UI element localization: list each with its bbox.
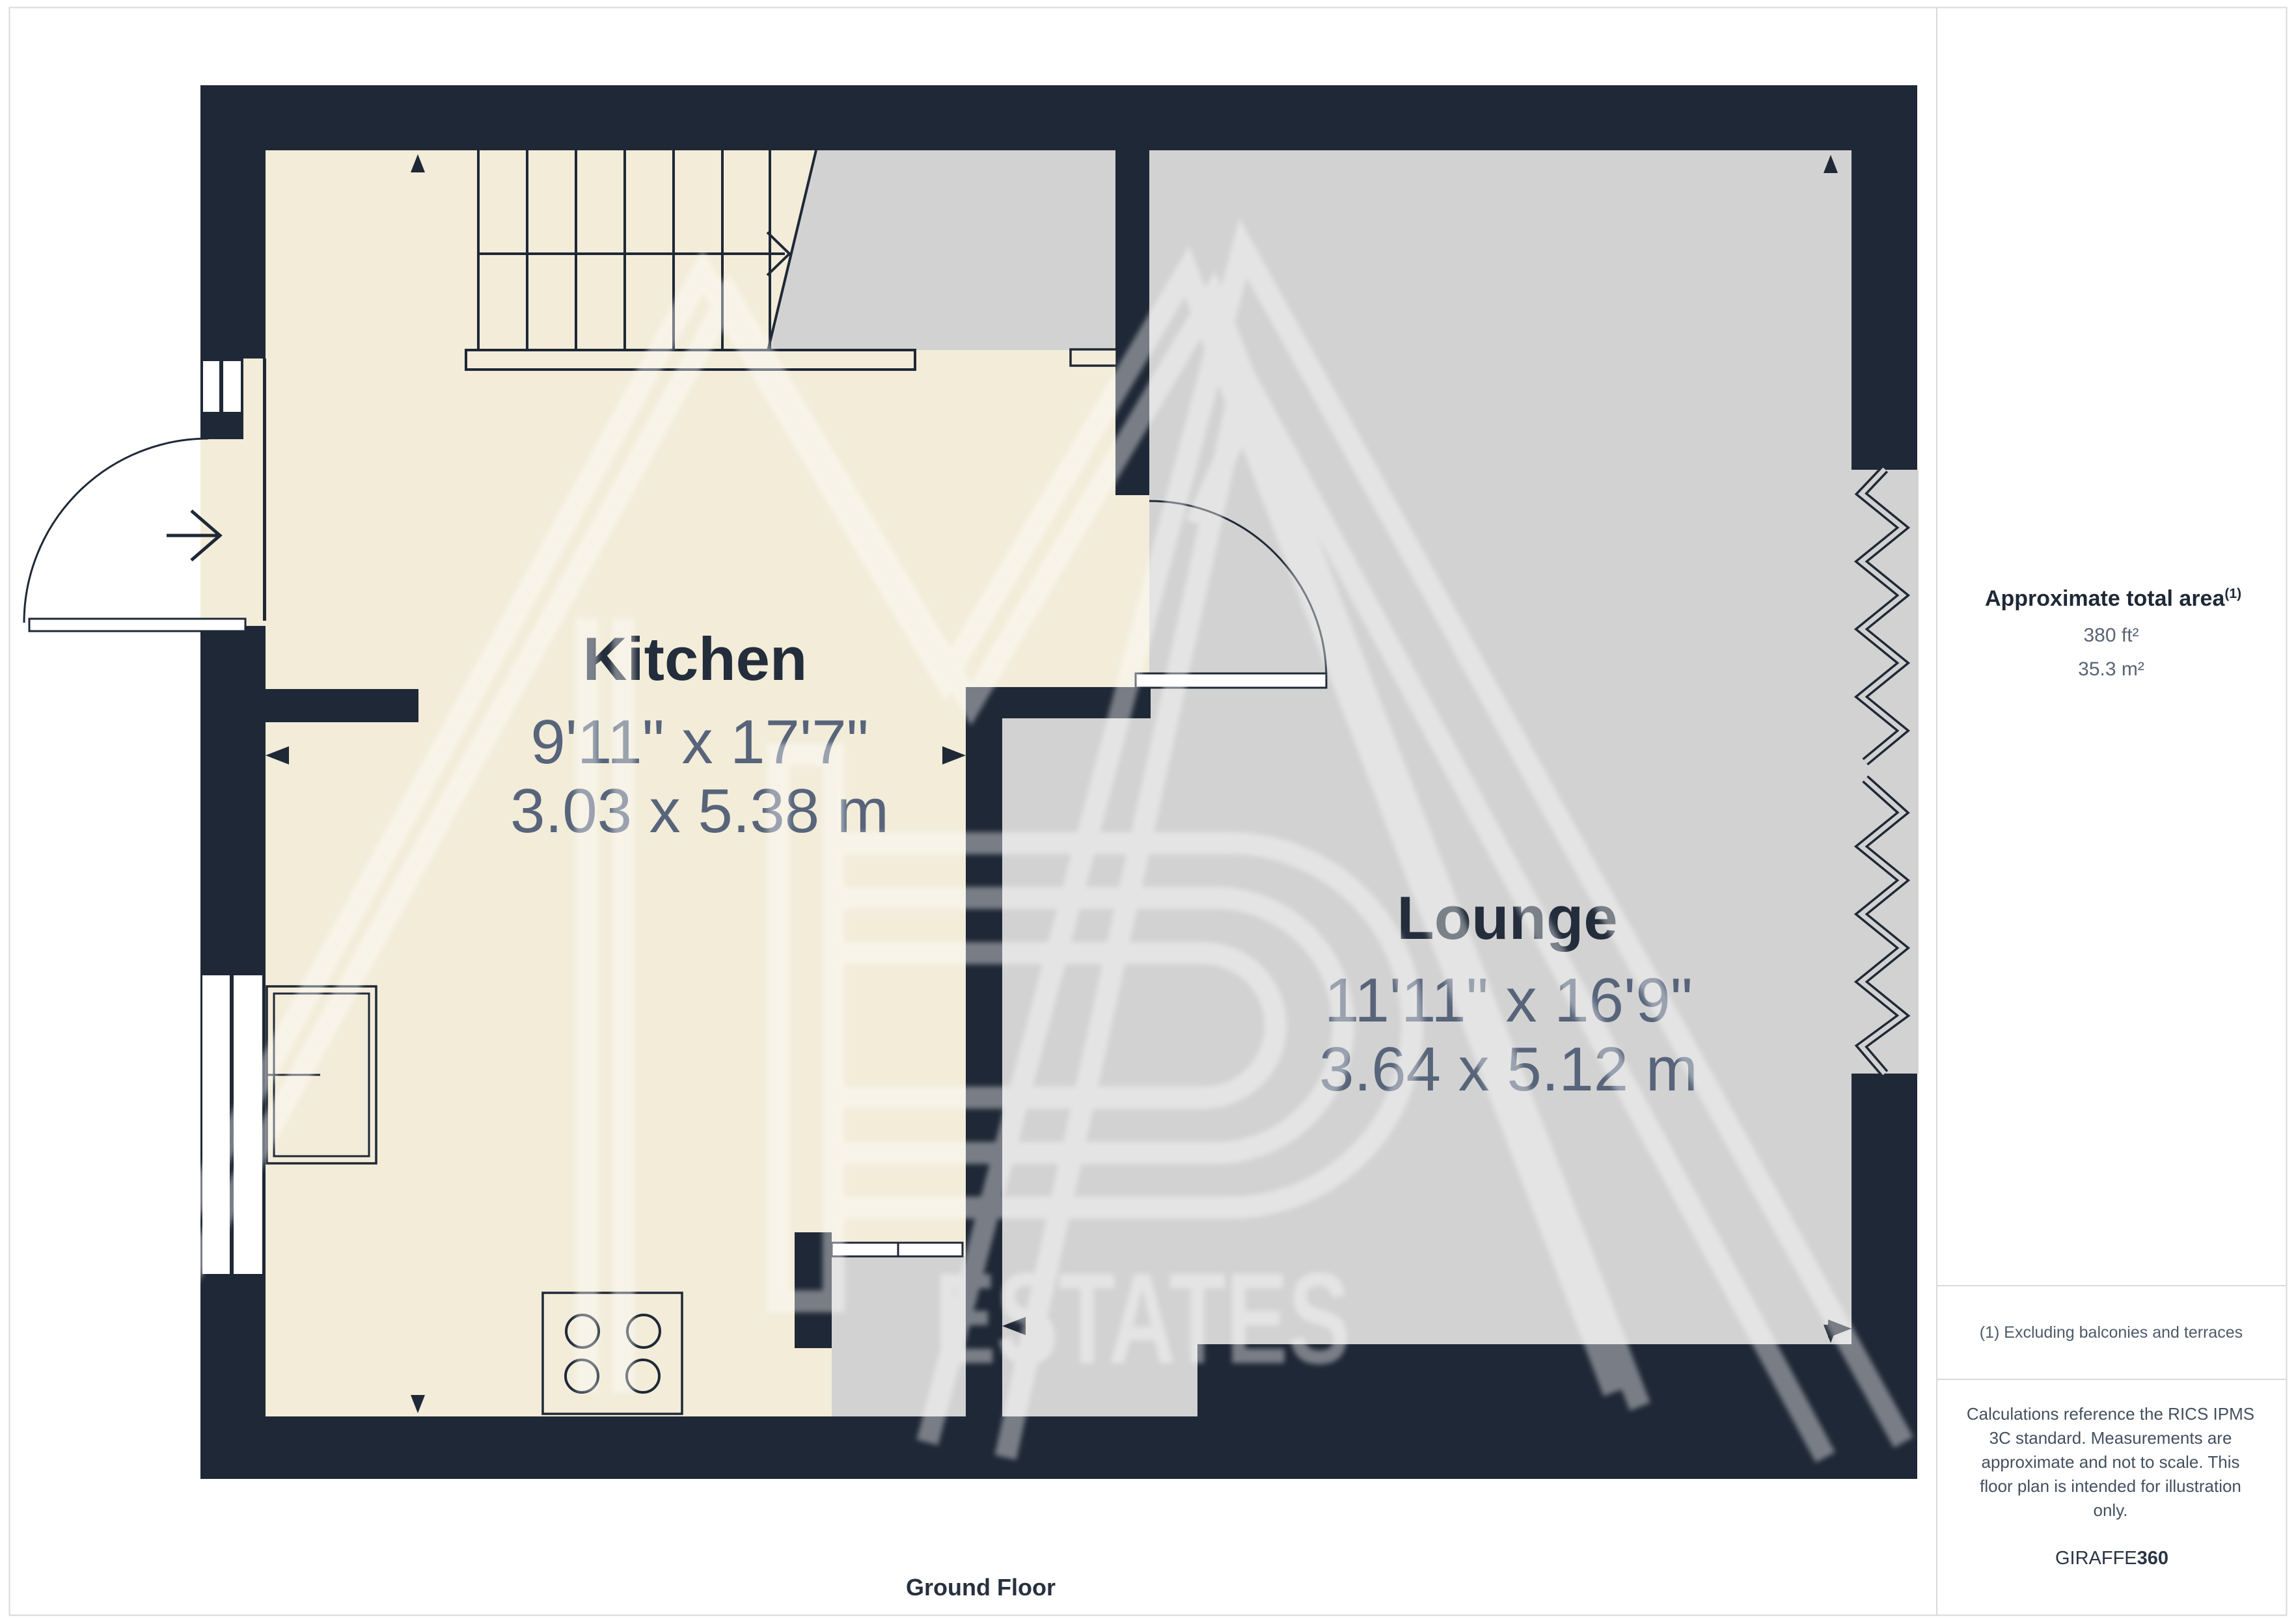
svg-text:GIRAFFE360: GIRAFFE360 [2055, 1548, 2168, 1569]
svg-text:only.: only. [2094, 1500, 2128, 1520]
svg-text:ESTATES: ESTATES [934, 1246, 1350, 1391]
svg-text:approximate and not to scale.: approximate and not to scale. This [1982, 1452, 2240, 1472]
svg-text:Approximate total area(1): Approximate total area(1) [1985, 586, 2241, 611]
svg-text:Calculations reference the RIC: Calculations reference the RICS IPMS [1967, 1404, 2254, 1424]
svg-text:35.3 m²: 35.3 m² [2078, 658, 2144, 680]
svg-text:380 ft²: 380 ft² [2083, 625, 2139, 646]
svg-text:floor plan is intended for ill: floor plan is intended for illustration [1980, 1476, 2241, 1496]
svg-text:(1) Excluding balconies and te: (1) Excluding balconies and terraces [1980, 1323, 2243, 1342]
svg-text:3C standard. Measurements are: 3C standard. Measurements are [1989, 1428, 2232, 1448]
svg-text:Ground Floor: Ground Floor [906, 1574, 1056, 1601]
